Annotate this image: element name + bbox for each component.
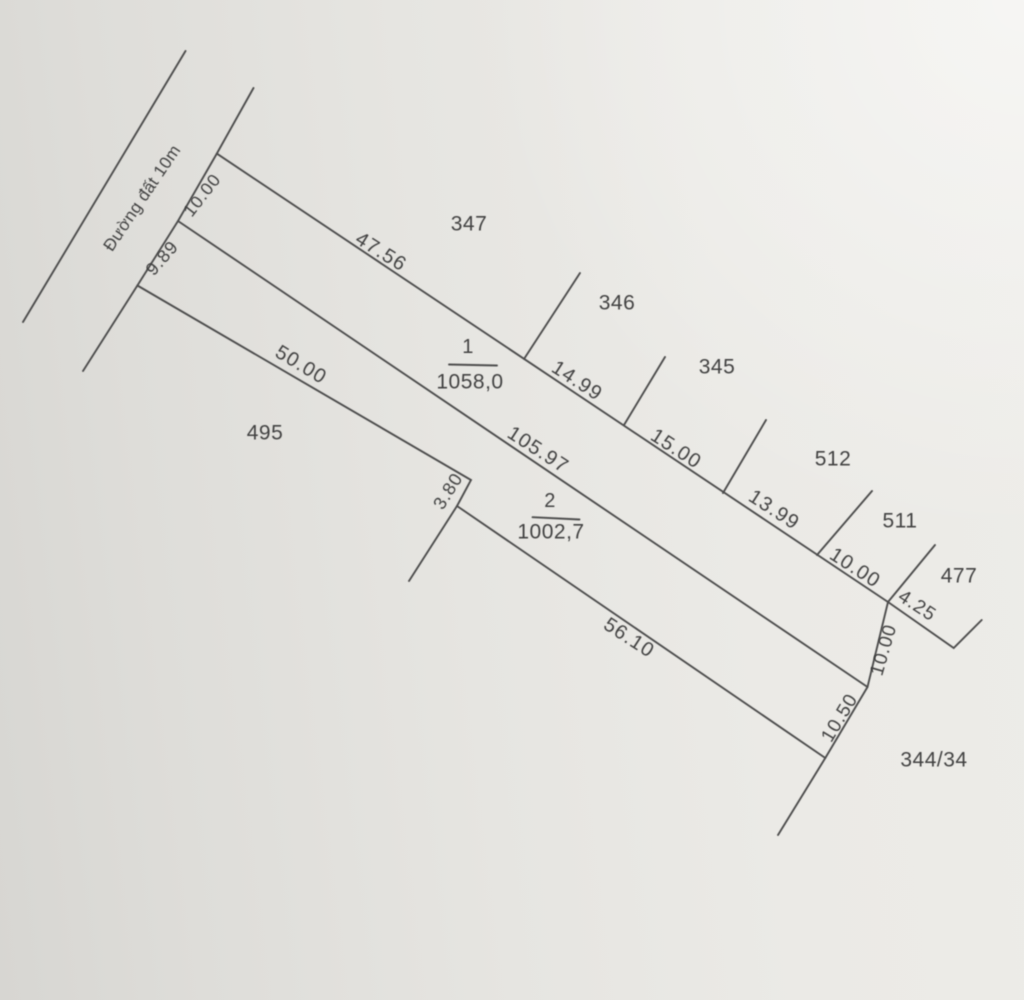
svg-text:477: 477 [941,565,978,588]
svg-text:344/34: 344/34 [900,749,967,772]
svg-text:1002,7: 1002,7 [517,521,584,544]
svg-text:13.99: 13.99 [745,486,804,535]
svg-text:56.10: 56.10 [600,614,659,663]
svg-text:10.00: 10.00 [179,170,225,221]
svg-text:346: 346 [599,292,636,315]
svg-text:10.50: 10.50 [817,690,862,746]
svg-text:47.56: 47.56 [351,228,410,276]
svg-text:495: 495 [247,422,284,445]
svg-text:4.25: 4.25 [894,586,940,626]
svg-text:15.00: 15.00 [647,425,706,474]
svg-text:10.00: 10.00 [867,622,902,678]
svg-text:1058,0: 1058,0 [436,371,503,394]
svg-text:10.00: 10.00 [826,544,885,593]
svg-text:347: 347 [451,213,488,236]
svg-text:2: 2 [544,490,556,512]
svg-text:3.80: 3.80 [429,469,467,513]
svg-text:Đường đất 10m: Đường đất 10m [100,141,185,254]
svg-text:105.97: 105.97 [503,422,572,478]
svg-text:9.89: 9.89 [142,237,183,280]
svg-text:345: 345 [699,356,736,379]
svg-text:1: 1 [462,336,474,358]
svg-text:511: 511 [883,510,918,533]
svg-text:512: 512 [815,448,852,471]
